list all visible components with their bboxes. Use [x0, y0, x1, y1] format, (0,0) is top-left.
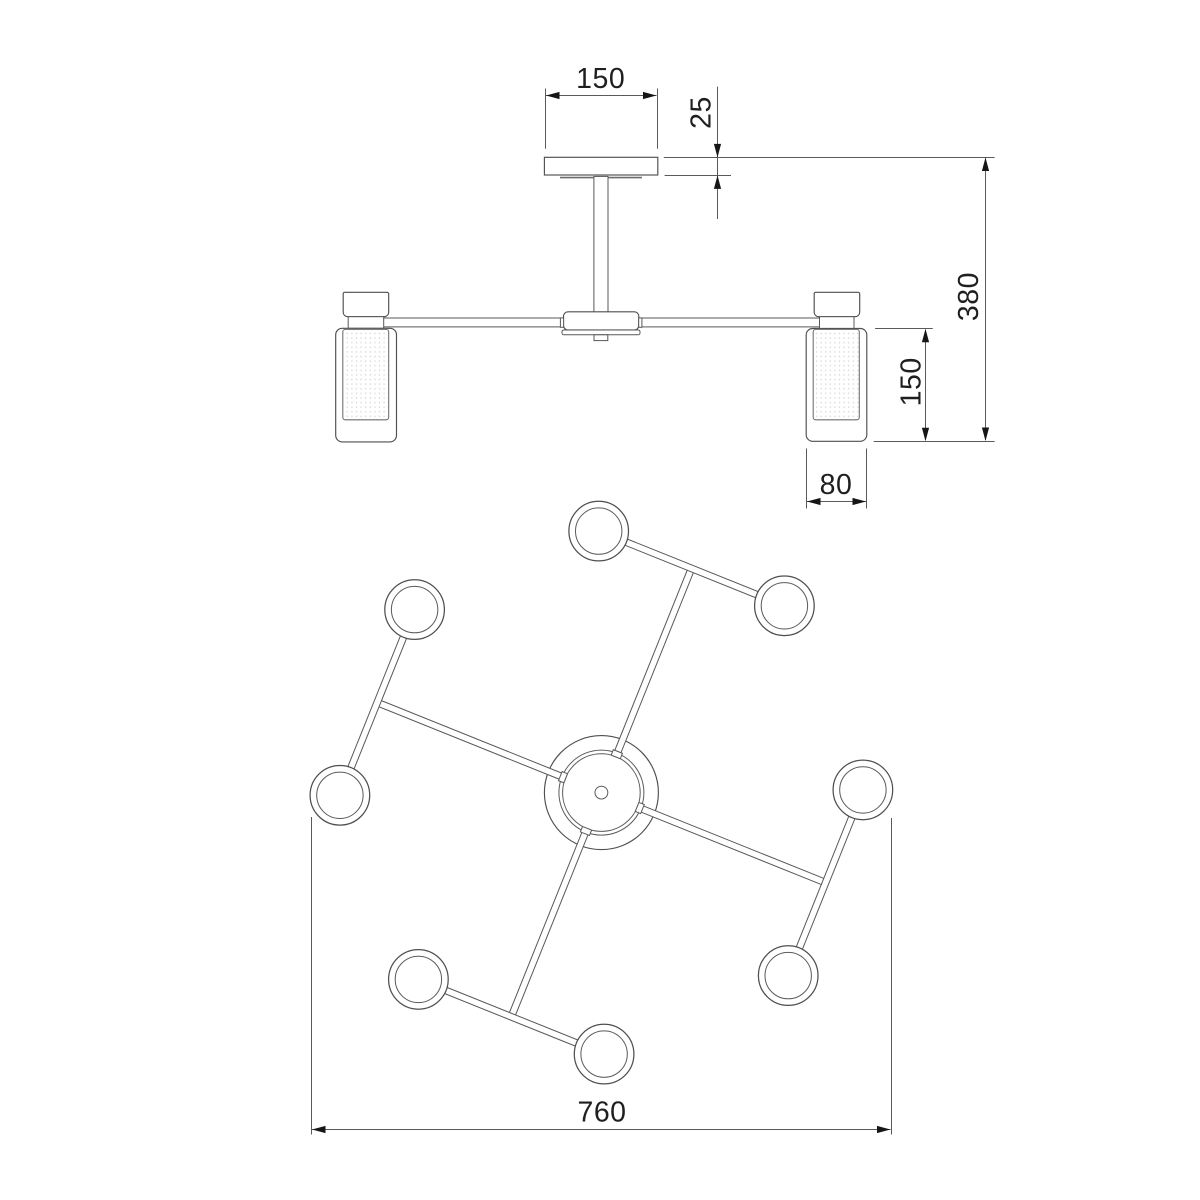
svg-text:760: 760 [577, 1097, 626, 1129]
svg-text:150: 150 [895, 357, 927, 406]
svg-text:80: 80 [820, 469, 853, 501]
svg-text:150: 150 [576, 63, 625, 95]
svg-text:25: 25 [685, 96, 717, 129]
svg-text:380: 380 [953, 272, 985, 321]
